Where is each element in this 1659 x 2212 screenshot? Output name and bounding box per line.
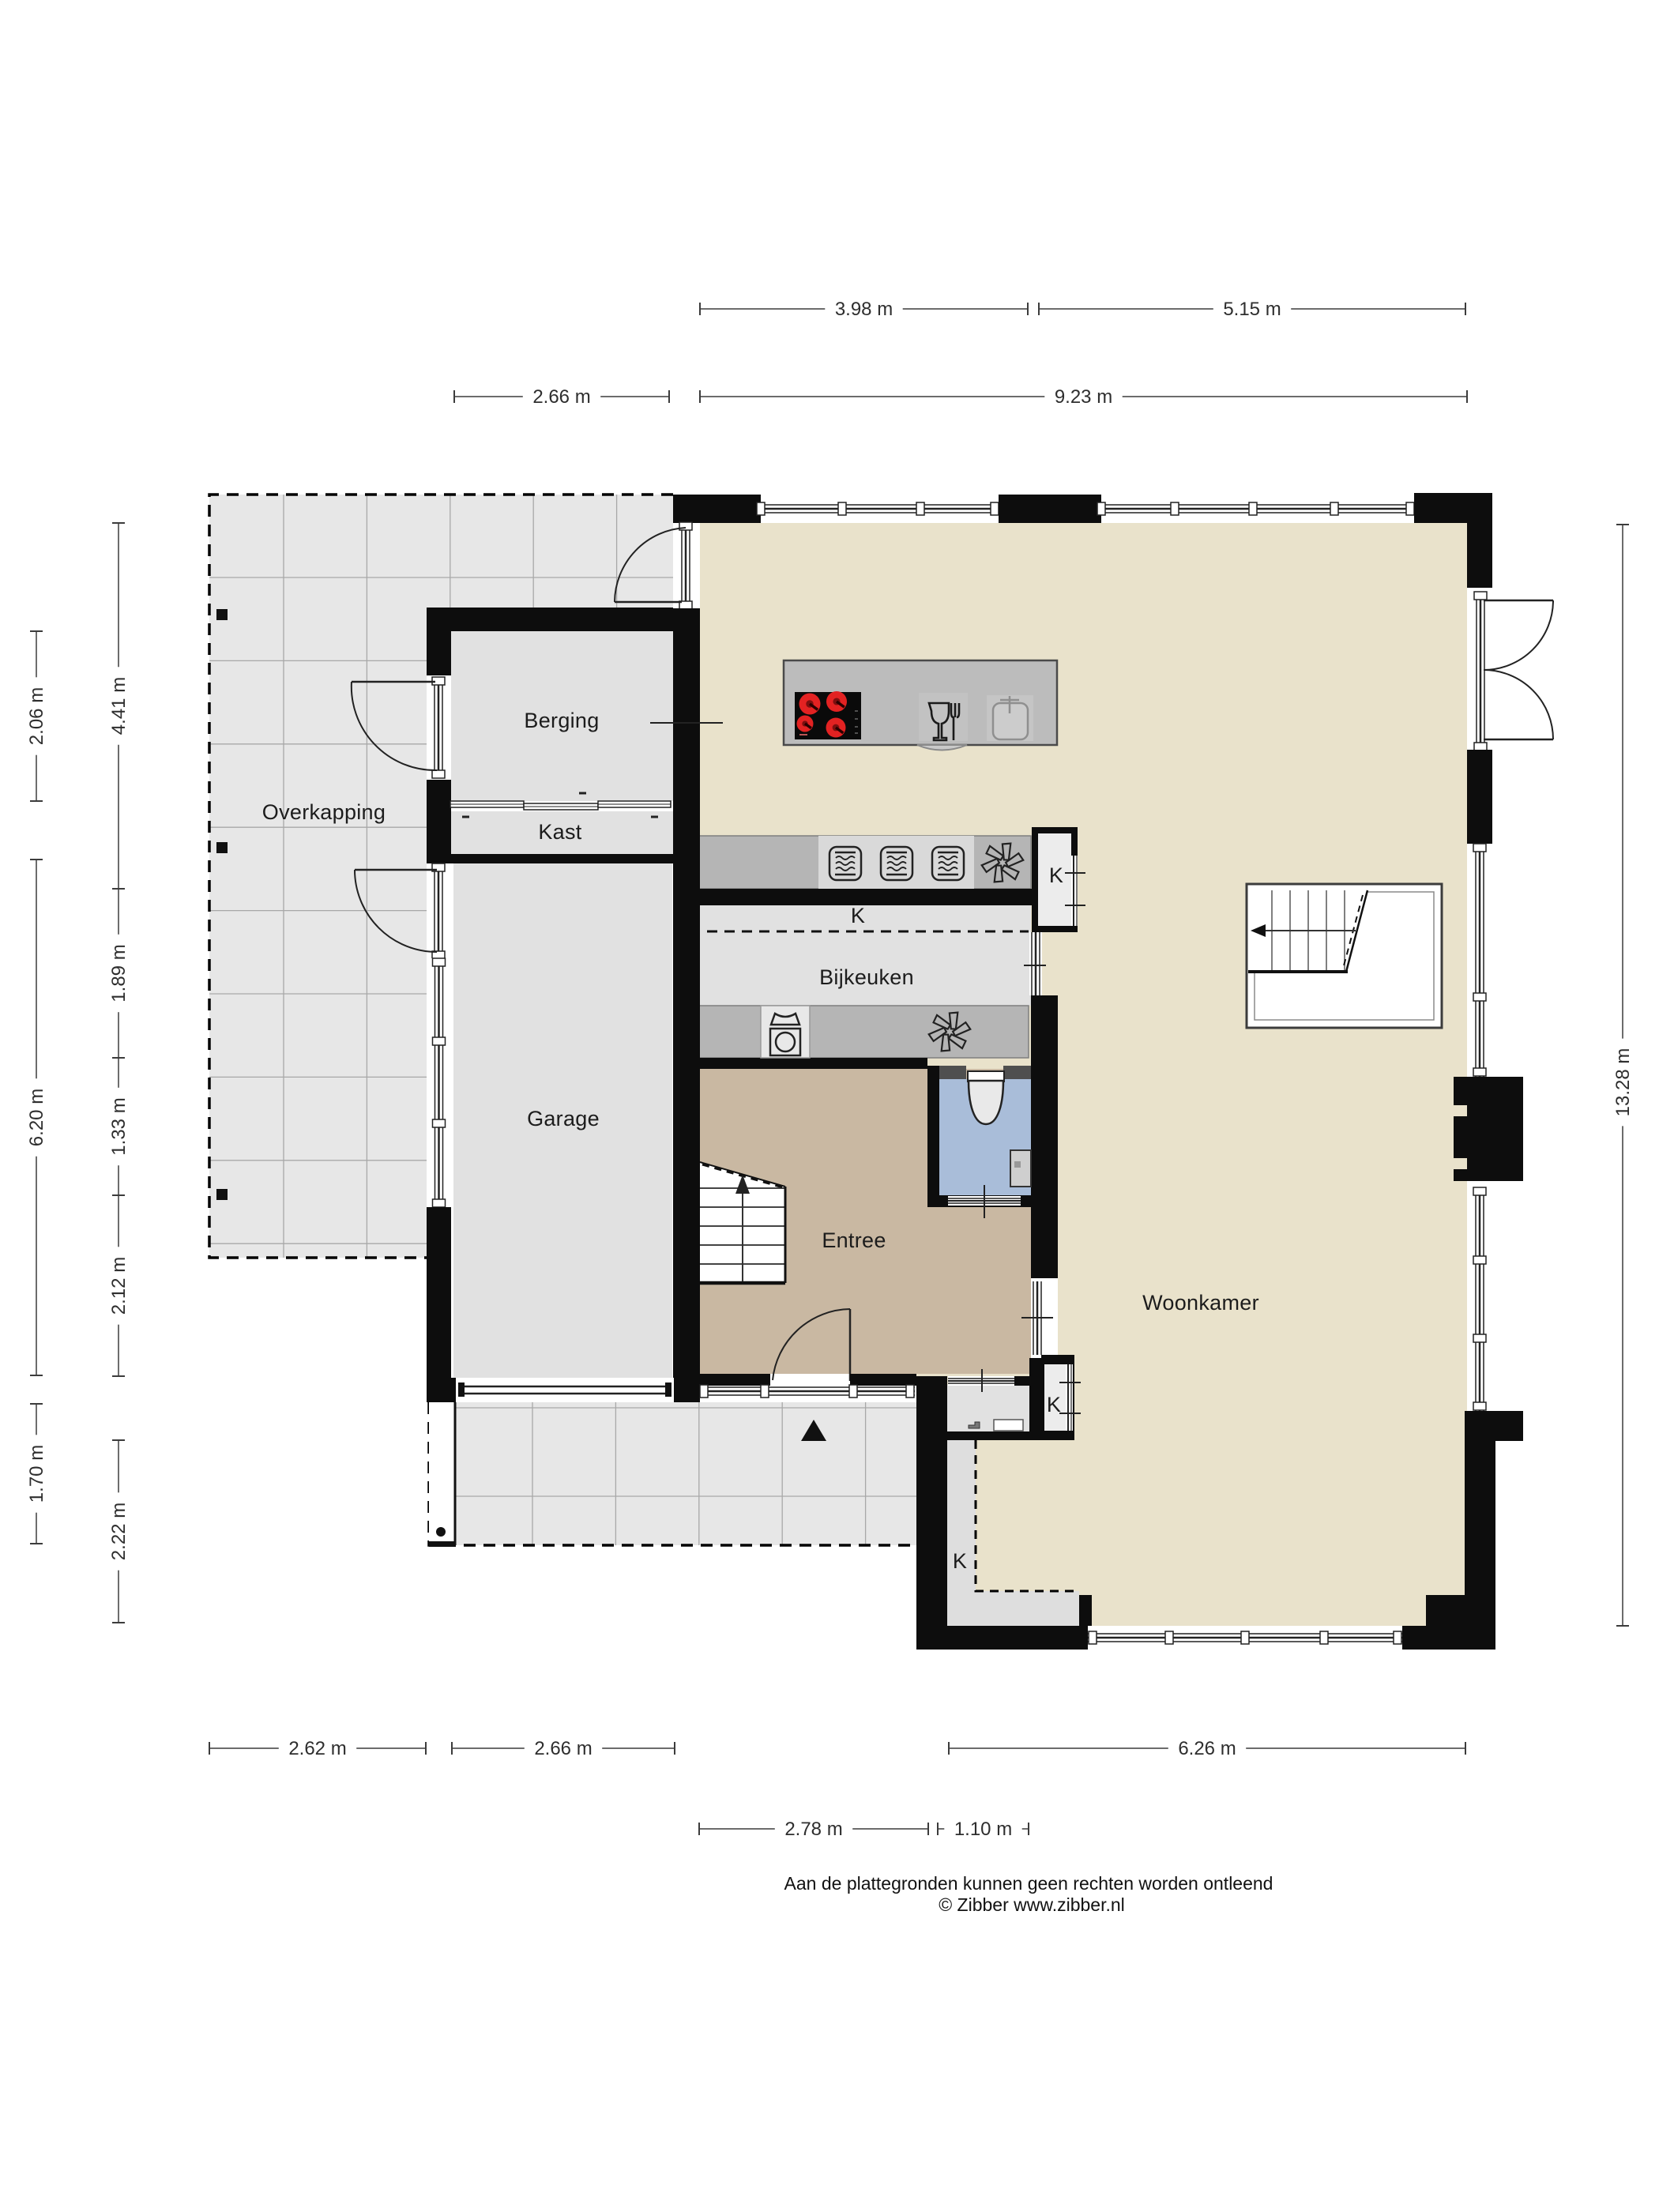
svg-text:K: K <box>953 1549 967 1573</box>
svg-text:Aan de plattegronden kunnen ge: Aan de plattegronden kunnen geen rechten… <box>784 1873 1273 1894</box>
svg-text:© Zibber www.zibber.nl: © Zibber www.zibber.nl <box>939 1894 1125 1915</box>
svg-text:1.10 m: 1.10 m <box>954 1819 1012 1840</box>
svg-text:4.41 m: 4.41 m <box>108 677 130 735</box>
svg-text:6.20 m: 6.20 m <box>26 1089 47 1146</box>
svg-text:Overkapping: Overkapping <box>262 800 386 824</box>
svg-text:3.98 m: 3.98 m <box>835 299 893 320</box>
svg-text:K: K <box>851 904 865 927</box>
svg-text:Entree: Entree <box>822 1228 886 1252</box>
svg-text:2.62 m: 2.62 m <box>288 1738 346 1759</box>
svg-text:5.15 m: 5.15 m <box>1223 299 1281 320</box>
svg-text:2.06 m: 2.06 m <box>26 687 47 745</box>
svg-text:2.12 m: 2.12 m <box>108 1257 130 1315</box>
svg-text:2.66 m: 2.66 m <box>534 1738 592 1759</box>
svg-text:2.66 m: 2.66 m <box>532 386 590 408</box>
svg-text:13.28 m: 13.28 m <box>1612 1048 1634 1117</box>
svg-text:1.70 m: 1.70 m <box>26 1445 47 1503</box>
svg-text:Berging: Berging <box>524 709 599 732</box>
svg-text:Woonkamer: Woonkamer <box>1142 1291 1259 1315</box>
svg-text:Garage: Garage <box>527 1107 600 1130</box>
svg-text:K: K <box>1049 863 1063 887</box>
svg-text:9.23 m: 9.23 m <box>1055 386 1112 408</box>
svg-text:6.26 m: 6.26 m <box>1178 1738 1236 1759</box>
svg-text:1.89 m: 1.89 m <box>108 944 130 1002</box>
svg-text:Bijkeuken: Bijkeuken <box>819 965 914 989</box>
svg-text:1.33 m: 1.33 m <box>108 1097 130 1155</box>
svg-text:Kast: Kast <box>538 820 581 844</box>
svg-text:2.22 m: 2.22 m <box>108 1503 130 1560</box>
svg-text:K: K <box>1047 1393 1061 1416</box>
svg-text:2.78 m: 2.78 m <box>784 1819 842 1840</box>
